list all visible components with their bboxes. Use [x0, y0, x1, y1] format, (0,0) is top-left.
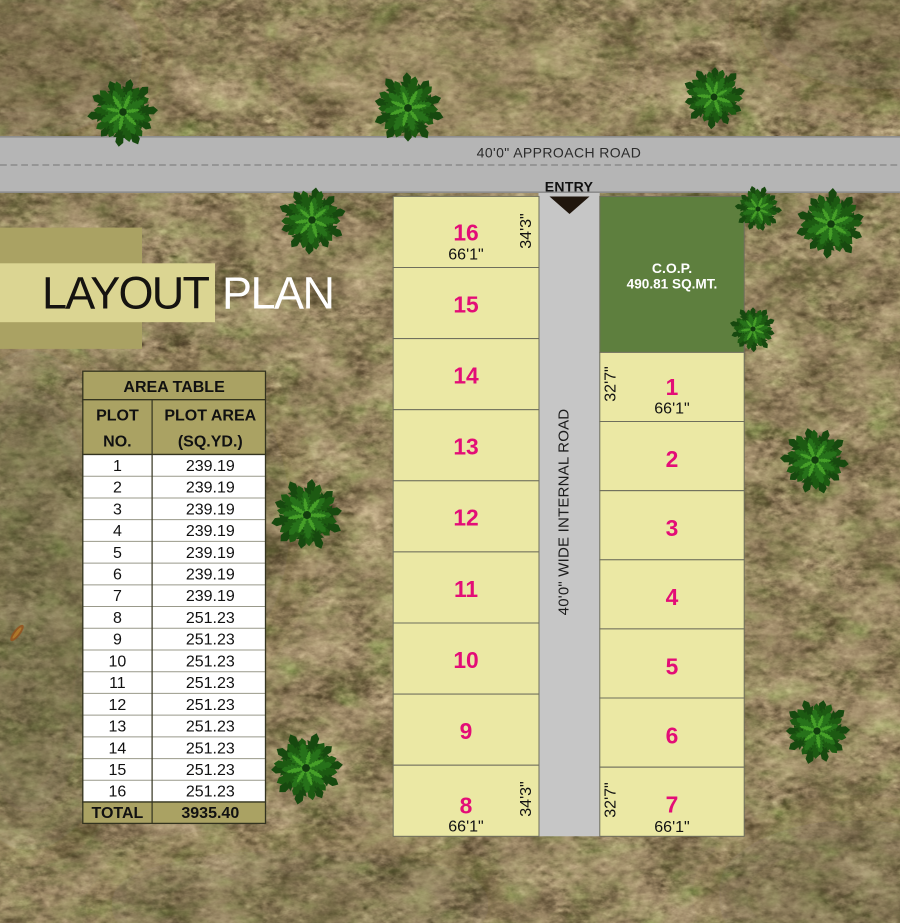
svg-text:7: 7 [666, 792, 679, 818]
svg-text:3: 3 [113, 501, 122, 518]
svg-text:11: 11 [109, 675, 126, 692]
svg-text:239.19: 239.19 [186, 567, 235, 584]
svg-text:C.O.P.: C.O.P. [652, 260, 692, 276]
svg-text:2: 2 [113, 480, 122, 497]
svg-text:6: 6 [666, 722, 679, 748]
svg-text:1: 1 [113, 458, 122, 475]
svg-text:251.23: 251.23 [186, 697, 235, 714]
svg-text:5: 5 [666, 653, 679, 679]
svg-text:251.23: 251.23 [186, 719, 235, 736]
svg-text:251.23: 251.23 [186, 784, 235, 801]
svg-text:66'1": 66'1" [448, 247, 483, 264]
svg-text:16: 16 [109, 784, 127, 801]
svg-text:12: 12 [109, 697, 127, 714]
svg-text:(SQ.YD.): (SQ.YD.) [178, 434, 243, 451]
svg-text:32'7": 32'7" [603, 782, 620, 817]
svg-text:32'7": 32'7" [603, 366, 620, 401]
svg-text:239.19: 239.19 [186, 501, 235, 518]
svg-text:251.23: 251.23 [186, 632, 235, 649]
svg-text:10: 10 [109, 653, 127, 670]
svg-text:4: 4 [666, 584, 679, 610]
svg-text:3935.40: 3935.40 [181, 805, 239, 822]
svg-text:1: 1 [666, 374, 679, 400]
svg-text:66'1": 66'1" [448, 819, 483, 836]
svg-text:3: 3 [666, 515, 679, 541]
svg-text:66'1": 66'1" [654, 400, 689, 417]
svg-text:7: 7 [113, 588, 122, 605]
svg-text:4: 4 [113, 523, 122, 540]
svg-text:5: 5 [113, 545, 122, 562]
svg-text:9: 9 [460, 718, 473, 744]
svg-text:8: 8 [113, 610, 122, 627]
svg-text:LAYOUT: LAYOUT [42, 268, 210, 319]
svg-text:239.19: 239.19 [186, 523, 235, 540]
svg-text:PLOT AREA: PLOT AREA [164, 408, 256, 425]
svg-text:ENTRY: ENTRY [545, 179, 594, 195]
svg-text:6: 6 [113, 567, 122, 584]
svg-text:251.23: 251.23 [186, 675, 235, 692]
svg-text:13: 13 [109, 719, 127, 736]
svg-text:66'1": 66'1" [654, 819, 689, 836]
svg-text:239.19: 239.19 [186, 458, 235, 475]
svg-text:PLOT: PLOT [96, 408, 139, 425]
svg-text:NO.: NO. [103, 434, 131, 451]
svg-text:8: 8 [460, 792, 473, 818]
svg-text:34'3": 34'3" [518, 213, 535, 248]
svg-text:12: 12 [453, 505, 478, 531]
svg-text:40'0" WIDE INTERNAL ROAD: 40'0" WIDE INTERNAL ROAD [556, 409, 573, 616]
svg-text:251.23: 251.23 [186, 762, 235, 779]
svg-text:13: 13 [453, 434, 478, 460]
svg-text:PLAN: PLAN [222, 268, 335, 319]
svg-text:40'0" APPROACH ROAD: 40'0" APPROACH ROAD [477, 145, 642, 161]
svg-text:15: 15 [453, 291, 479, 317]
svg-text:16: 16 [453, 219, 478, 245]
svg-text:11: 11 [454, 576, 478, 602]
svg-text:14: 14 [109, 740, 127, 757]
svg-text:TOTAL: TOTAL [91, 805, 143, 822]
svg-text:10: 10 [453, 647, 478, 673]
svg-text:239.19: 239.19 [186, 545, 235, 562]
svg-text:251.23: 251.23 [186, 740, 235, 757]
svg-text:9: 9 [113, 632, 122, 649]
svg-text:239.19: 239.19 [186, 588, 235, 605]
svg-text:34'3": 34'3" [518, 781, 535, 816]
svg-text:239.19: 239.19 [186, 480, 235, 497]
svg-text:14: 14 [453, 363, 479, 389]
svg-text:251.23: 251.23 [186, 610, 235, 627]
svg-text:15: 15 [109, 762, 127, 779]
svg-text:2: 2 [666, 446, 679, 472]
svg-text:490.81 SQ.MT.: 490.81 SQ.MT. [627, 277, 718, 292]
svg-text:251.23: 251.23 [186, 653, 235, 670]
svg-text:AREA TABLE: AREA TABLE [123, 379, 225, 396]
